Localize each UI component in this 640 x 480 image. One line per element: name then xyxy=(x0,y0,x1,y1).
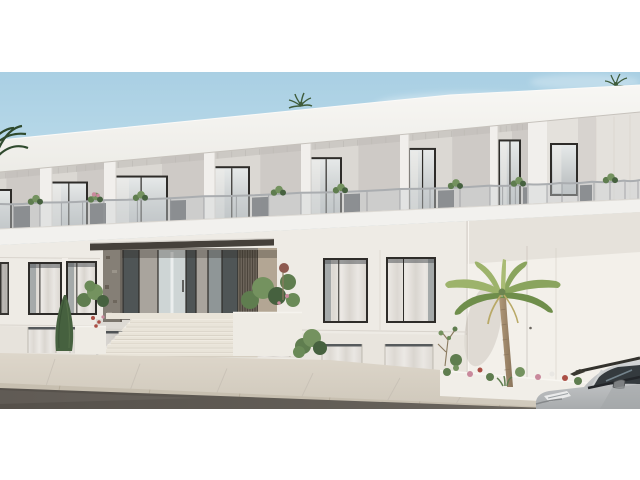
canopy-underside-shadow xyxy=(103,250,277,258)
letterbox-bottom xyxy=(0,409,640,480)
balcony-plant xyxy=(342,187,348,193)
entrance-panel-wall xyxy=(196,250,208,318)
balcony-plant xyxy=(280,190,286,196)
entrance-panel-glass_dark xyxy=(222,250,238,318)
entrance-panel-glass_med xyxy=(208,250,222,318)
bed-plant xyxy=(486,373,494,381)
ground-window-glass-pane xyxy=(30,264,36,313)
window-top-shadow xyxy=(325,260,366,264)
entrance-panel-glass_dark xyxy=(123,250,139,318)
flower xyxy=(550,372,555,377)
glass-reflection xyxy=(171,252,174,316)
basement-window-head xyxy=(385,344,433,347)
ground-window-curtain xyxy=(325,260,366,321)
flower xyxy=(478,368,483,373)
entrance-panel-wall xyxy=(139,250,158,318)
entrance-stone-pillar xyxy=(103,248,122,322)
balcony-flower xyxy=(92,192,96,196)
ground-window-glass-pane xyxy=(325,260,331,321)
building-render-canvas: 3D exterior render of a modern two-store… xyxy=(0,0,640,480)
letterbox-top xyxy=(0,0,640,72)
entrance-glass-wall xyxy=(123,250,238,318)
window-top-shadow xyxy=(30,264,60,268)
balcony-plant xyxy=(612,177,618,183)
bed-plant xyxy=(574,377,582,385)
window-top-shadow xyxy=(388,259,434,263)
railing-privacy-panel xyxy=(523,187,527,206)
bed-plant xyxy=(443,368,451,376)
wing-door-handle xyxy=(529,327,532,330)
balcony-plant xyxy=(142,195,148,201)
railing-privacy-panel xyxy=(344,194,360,215)
scene xyxy=(0,72,640,412)
flower xyxy=(562,375,568,381)
entrance-panel-glass_dark xyxy=(186,250,196,318)
railing-privacy-panel xyxy=(252,197,268,219)
balcony-plant xyxy=(97,196,103,202)
flower xyxy=(535,374,541,380)
window-top-shadow xyxy=(68,263,95,267)
ground-window-glass-pane xyxy=(428,259,434,321)
basement-window-head xyxy=(28,327,56,330)
architectural-render-image: 3D exterior render of a modern two-store… xyxy=(0,0,640,480)
railing-privacy-panel xyxy=(170,200,186,223)
railing-privacy-panel xyxy=(14,206,30,230)
balcony-flower xyxy=(96,194,100,198)
left-edge-window-curtain xyxy=(2,264,8,313)
bed-plant xyxy=(515,367,525,377)
balcony-plant xyxy=(520,181,526,187)
flower xyxy=(467,371,473,377)
basement-window xyxy=(28,327,56,353)
ground-window-curtain xyxy=(388,259,434,321)
bed-plant xyxy=(453,365,459,371)
balcony-plant xyxy=(37,199,43,205)
balcony-plant xyxy=(457,183,463,189)
basement-window-head xyxy=(322,344,362,347)
entrance xyxy=(90,239,277,323)
